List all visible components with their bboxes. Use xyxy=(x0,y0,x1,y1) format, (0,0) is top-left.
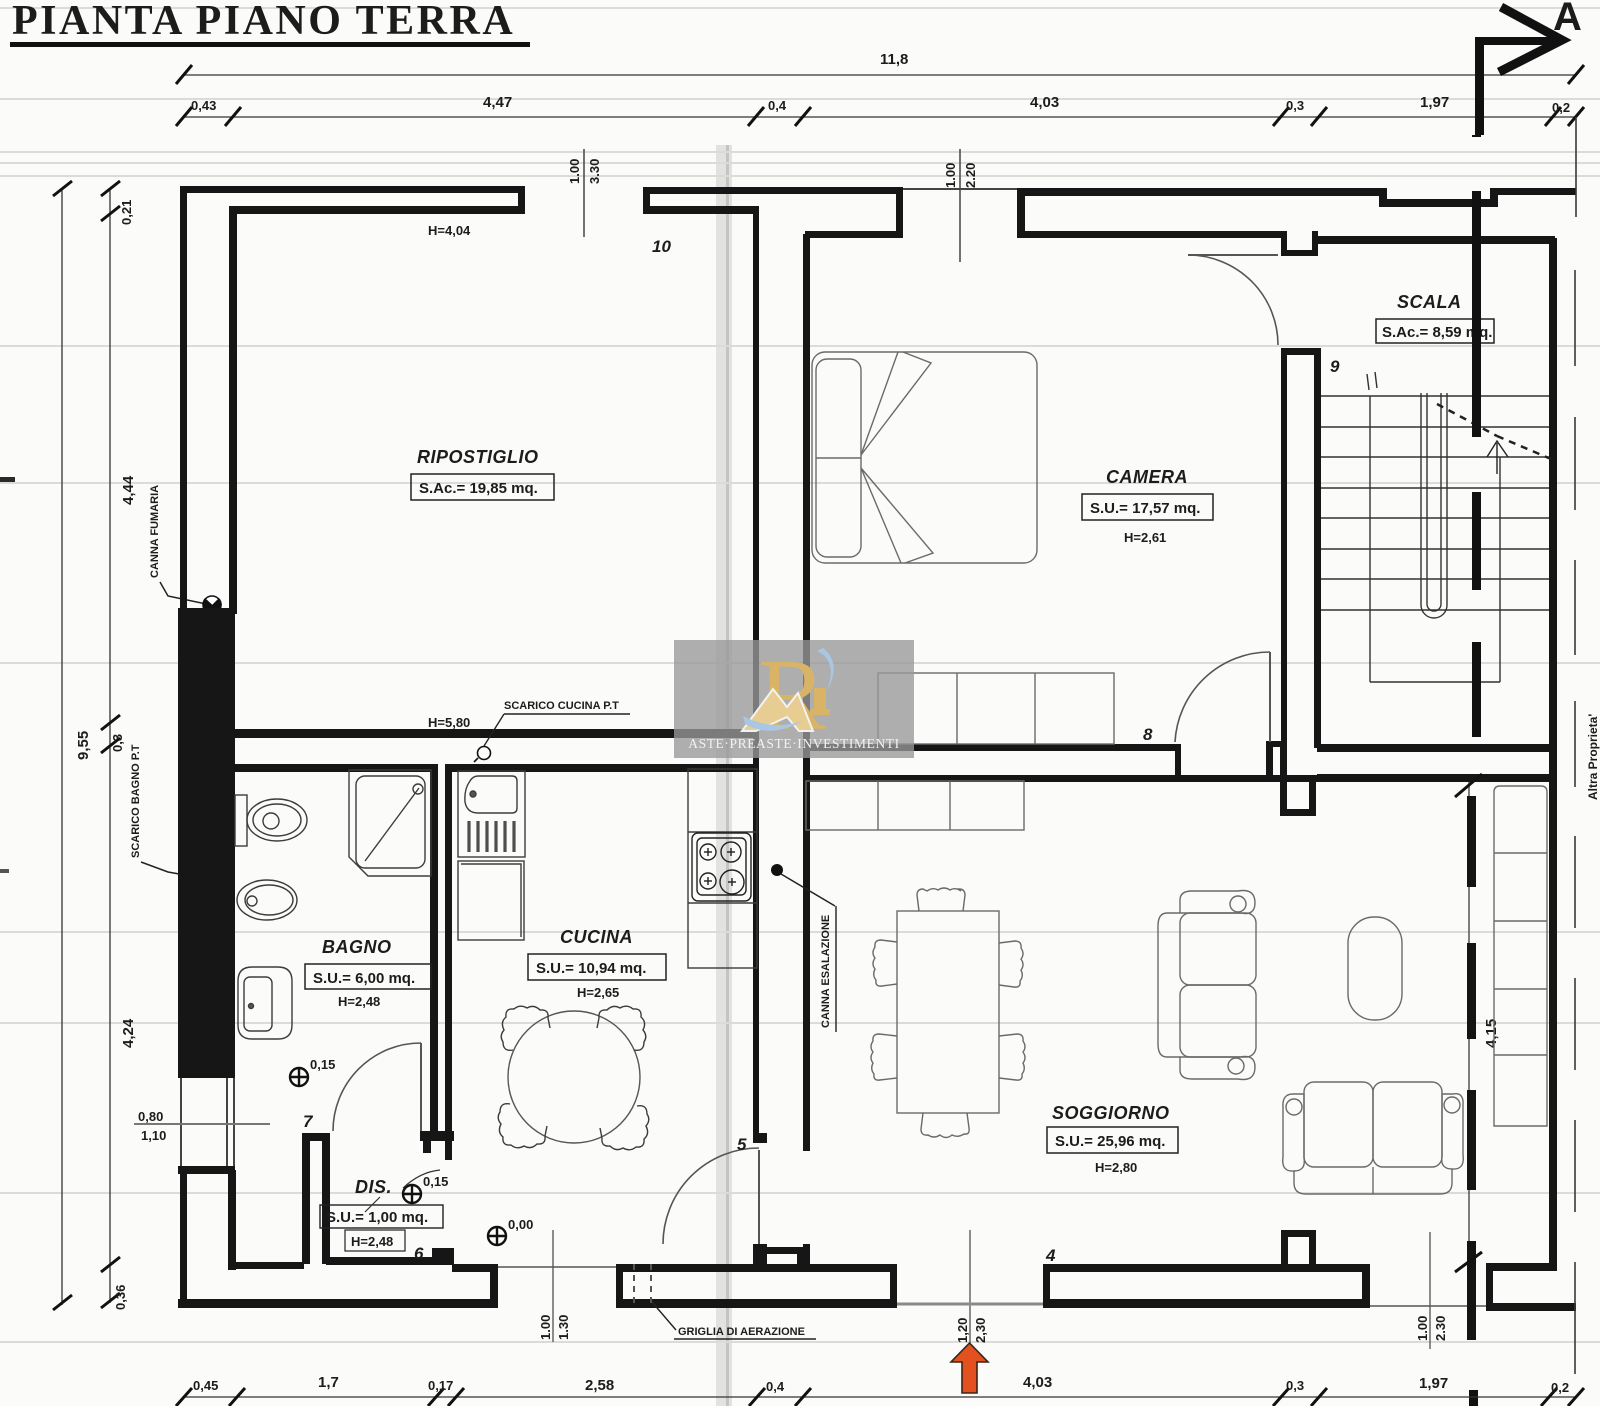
svg-text:SOGGIORNO: SOGGIORNO xyxy=(1052,1103,1170,1123)
svg-text:H=2,61: H=2,61 xyxy=(1124,530,1166,545)
svg-text:S.U.= 25,96 mq.: S.U.= 25,96 mq. xyxy=(1055,1133,1165,1150)
svg-text:0,17: 0,17 xyxy=(428,1378,453,1393)
svg-text:3.30: 3.30 xyxy=(587,159,602,184)
svg-text:H=4,04: H=4,04 xyxy=(428,223,471,238)
svg-text:0,00: 0,00 xyxy=(508,1217,533,1232)
svg-text:RIPOSTIGLIO: RIPOSTIGLIO xyxy=(417,447,539,467)
svg-text:S.U.= 10,94 mq.: S.U.= 10,94 mq. xyxy=(536,960,646,977)
svg-text:H=2,80: H=2,80 xyxy=(1095,1160,1137,1175)
svg-text:0,43: 0,43 xyxy=(191,98,216,113)
svg-text:H=5,80: H=5,80 xyxy=(428,715,470,730)
svg-text:CANNA ESALAZIONE: CANNA ESALAZIONE xyxy=(820,915,832,1028)
svg-text:1,20: 1,20 xyxy=(955,1318,970,1343)
svg-text:4,24: 4,24 xyxy=(120,1018,137,1048)
svg-text:0,4: 0,4 xyxy=(766,1379,785,1394)
svg-text:CUCINA: CUCINA xyxy=(560,927,633,947)
svg-text:0,15: 0,15 xyxy=(310,1057,335,1072)
svg-text:0,80: 0,80 xyxy=(138,1109,163,1124)
svg-text:0,4: 0,4 xyxy=(768,98,787,113)
svg-text:H=2,65: H=2,65 xyxy=(577,985,619,1000)
svg-text:4,03: 4,03 xyxy=(1030,94,1059,111)
svg-text:BAGNO: BAGNO xyxy=(322,937,392,957)
svg-text:8: 8 xyxy=(1143,725,1153,744)
svg-text:5: 5 xyxy=(737,1135,747,1154)
svg-text:1.00: 1.00 xyxy=(567,159,582,184)
svg-text:4,44: 4,44 xyxy=(120,475,137,505)
svg-text:PIANTA PIANO TERRA: PIANTA PIANO TERRA xyxy=(12,0,515,44)
svg-text:DIS.: DIS. xyxy=(355,1177,392,1197)
svg-text:2.20: 2.20 xyxy=(963,163,978,188)
svg-text:1.00: 1.00 xyxy=(538,1315,553,1340)
svg-text:Altra Proprieta': Altra Proprieta' xyxy=(1586,714,1600,800)
svg-text:0,3: 0,3 xyxy=(110,734,125,752)
svg-text:S.U.= 17,57 mq.: S.U.= 17,57 mq. xyxy=(1090,500,1200,517)
svg-text:S.Ac.= 19,85 mq.: S.Ac.= 19,85 mq. xyxy=(419,480,538,497)
svg-text:ASTE·PREASTE·INVESTIMENTI: ASTE·PREASTE·INVESTIMENTI xyxy=(688,736,899,751)
svg-text:SCARICO CUCINA P.T: SCARICO CUCINA P.T xyxy=(504,700,619,712)
svg-text:0,3: 0,3 xyxy=(1286,98,1304,113)
svg-text:0,2: 0,2 xyxy=(1552,100,1570,115)
svg-text:0,36: 0,36 xyxy=(113,1285,128,1310)
svg-text:6: 6 xyxy=(414,1244,424,1263)
svg-text:1.30: 1.30 xyxy=(556,1315,571,1340)
svg-text:0,45: 0,45 xyxy=(193,1378,218,1393)
svg-text:1,97: 1,97 xyxy=(1420,94,1449,111)
svg-text:9: 9 xyxy=(1330,357,1340,376)
svg-text:S.U.= 1,00 mq.: S.U.= 1,00 mq. xyxy=(326,1209,428,1226)
svg-text:1,97: 1,97 xyxy=(1419,1375,1448,1392)
svg-text:0,15: 0,15 xyxy=(423,1174,448,1189)
svg-text:GRIGLIA DI AERAZIONE: GRIGLIA DI AERAZIONE xyxy=(678,1326,805,1338)
svg-text:H=2,48: H=2,48 xyxy=(338,994,380,1009)
svg-text:1.00: 1.00 xyxy=(943,163,958,188)
svg-text:9,55: 9,55 xyxy=(75,731,92,760)
svg-text:1,7: 1,7 xyxy=(318,1374,339,1391)
svg-text:SCALA: SCALA xyxy=(1397,292,1462,312)
svg-text:S.U.= 6,00 mq.: S.U.= 6,00 mq. xyxy=(313,970,415,987)
svg-text:CANNA FUMARIA: CANNA FUMARIA xyxy=(149,485,161,578)
svg-text:SCARICO BAGNO P.T: SCARICO BAGNO P.T xyxy=(130,744,142,858)
svg-text:4: 4 xyxy=(1045,1246,1056,1265)
svg-text:0,3: 0,3 xyxy=(1286,1378,1304,1393)
svg-text:1,10: 1,10 xyxy=(141,1128,166,1143)
svg-text:CAMERA: CAMERA xyxy=(1106,467,1188,487)
svg-text:2,58: 2,58 xyxy=(585,1377,614,1394)
svg-text:2.30: 2.30 xyxy=(1433,1316,1448,1341)
svg-text:4,03: 4,03 xyxy=(1023,1374,1052,1391)
svg-text:4,47: 4,47 xyxy=(483,94,512,111)
svg-text:A: A xyxy=(1553,0,1582,39)
svg-text:2,30: 2,30 xyxy=(973,1318,988,1343)
svg-text:0,21: 0,21 xyxy=(119,200,134,225)
svg-text:H=2,48: H=2,48 xyxy=(351,1234,393,1249)
svg-text:7: 7 xyxy=(303,1112,314,1131)
svg-text:0,2: 0,2 xyxy=(1551,1380,1569,1395)
svg-text:11,8: 11,8 xyxy=(880,51,908,68)
svg-text:1.00: 1.00 xyxy=(1415,1316,1430,1341)
svg-text:4,15: 4,15 xyxy=(1483,1019,1500,1048)
svg-text:10: 10 xyxy=(652,237,671,256)
